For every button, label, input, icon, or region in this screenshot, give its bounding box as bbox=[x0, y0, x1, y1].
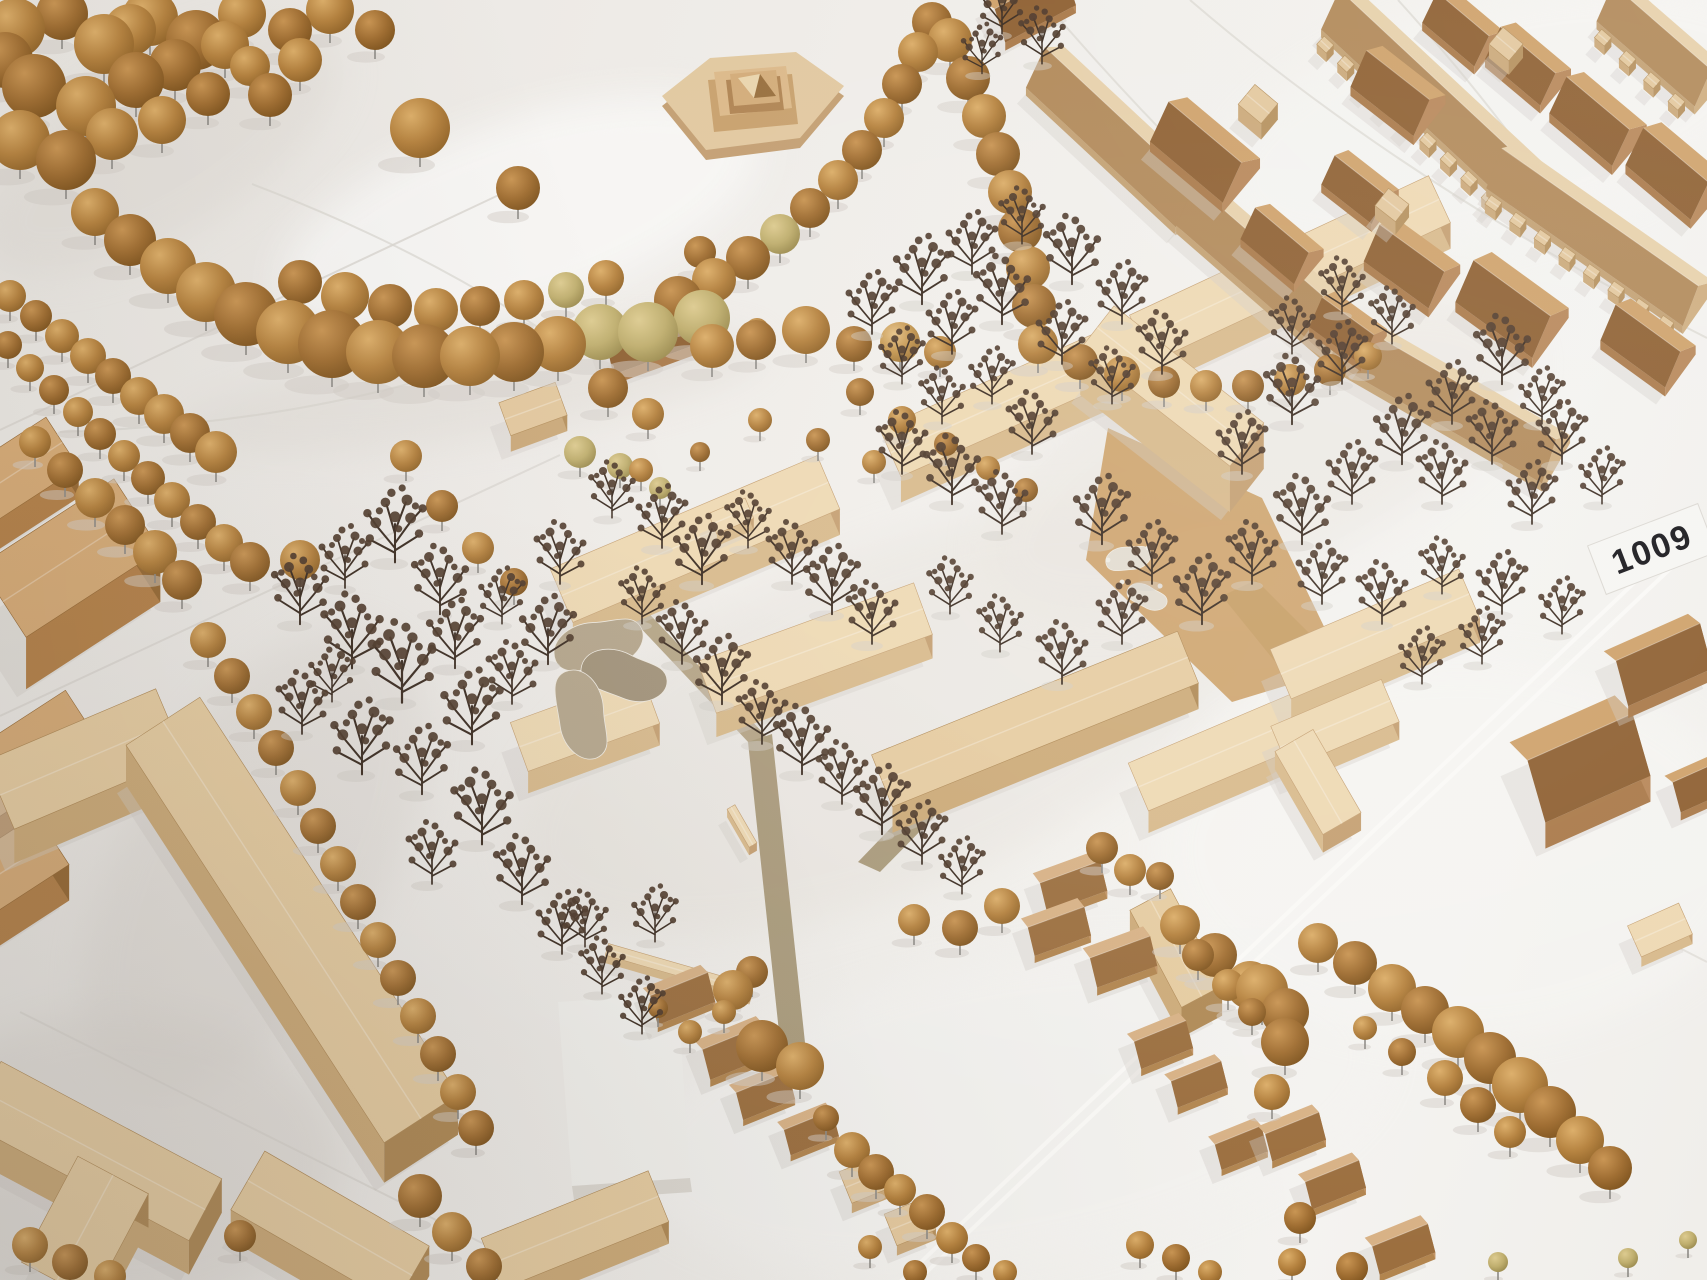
model-tree-round bbox=[862, 450, 886, 474]
model-tree-branchy-shadow bbox=[499, 901, 534, 912]
model-tree-round bbox=[458, 1110, 494, 1146]
model-tree-branchy-shadow bbox=[370, 558, 408, 570]
model-tree-branchy-shadow bbox=[541, 951, 573, 961]
model-tree-round bbox=[1126, 1231, 1154, 1259]
model-tree-round-shadow bbox=[726, 1072, 775, 1087]
model-tree-round bbox=[776, 1042, 824, 1090]
model-tree-round-shadow bbox=[313, 884, 347, 894]
model-tree-round bbox=[400, 998, 436, 1034]
model-tree-branchy-shadow bbox=[931, 612, 960, 621]
model-tree-round bbox=[0, 280, 26, 312]
model-tree-round-shadow bbox=[197, 564, 233, 575]
model-tree-round-shadow bbox=[229, 732, 263, 742]
model-tree-round bbox=[16, 354, 44, 382]
model-tree-branchy-shadow bbox=[1023, 62, 1052, 71]
model-tree-round bbox=[1198, 1260, 1222, 1280]
model-tree-branchy bbox=[893, 233, 951, 305]
model-tree-round-shadow bbox=[1614, 1272, 1633, 1278]
model-tree-branchy-shadow bbox=[1331, 501, 1363, 511]
model-tree-round bbox=[278, 38, 322, 82]
model-tree-round-shadow bbox=[67, 519, 105, 530]
model-tree-round bbox=[84, 418, 116, 450]
model-tree-branchy-shadow bbox=[851, 641, 883, 651]
model-tree-branchy-shadow bbox=[636, 940, 665, 949]
model-tree-round bbox=[1148, 366, 1180, 398]
model-tree-round bbox=[138, 96, 186, 144]
model-tree-round bbox=[1114, 854, 1146, 886]
model-tree-round bbox=[909, 1194, 945, 1230]
model-tree-round-shadow bbox=[853, 1263, 876, 1270]
model-tree-round-shadow bbox=[33, 408, 62, 416]
model-tree-branchy-shadow bbox=[1321, 381, 1353, 391]
model-tree-round-shadow bbox=[1206, 1004, 1236, 1013]
model-tree-round-shadow bbox=[878, 1209, 908, 1218]
model-tree-branchy-shadow bbox=[1041, 681, 1073, 691]
model-tree-round bbox=[195, 431, 237, 473]
model-tree-round bbox=[813, 1105, 839, 1131]
model-tree-round-shadow bbox=[1247, 1112, 1281, 1122]
model-tree-branchy-shadow bbox=[1231, 581, 1263, 591]
model-tree-branchy-shadow bbox=[1141, 371, 1173, 381]
model-tree-branchy-shadow bbox=[979, 321, 1014, 332]
model-tree-branchy bbox=[1043, 213, 1101, 285]
model-tree-round bbox=[632, 398, 664, 430]
model-tree-branchy-shadow bbox=[1011, 451, 1043, 461]
model-tree-round-shadow bbox=[124, 575, 166, 587]
model-tree-branchy-shadow bbox=[1379, 461, 1414, 472]
model-tree-branchy bbox=[846, 269, 899, 334]
model-tree-round bbox=[1232, 370, 1264, 402]
model-tree-branchy-shadow bbox=[483, 622, 512, 631]
model-tree-branchy-shadow bbox=[931, 351, 963, 361]
model-tree-branchy bbox=[406, 819, 459, 884]
model-tree-round bbox=[1238, 998, 1266, 1026]
model-tree-branchy-shadow bbox=[593, 516, 622, 525]
model-tree-round-shadow bbox=[1232, 1029, 1259, 1037]
model-tree-round-shadow bbox=[420, 525, 450, 534]
model-tree-branchy-shadow bbox=[375, 698, 417, 711]
model-tree-branchy-shadow bbox=[1421, 501, 1453, 511]
model-tree-branchy-shadow bbox=[1049, 281, 1084, 292]
model-tree-round bbox=[748, 408, 772, 432]
model-tree-branchy-shadow bbox=[1093, 402, 1122, 411]
model-tree-branchy-shadow bbox=[447, 740, 485, 752]
model-tree-round bbox=[440, 1074, 476, 1110]
model-tree-round-shadow bbox=[293, 846, 327, 856]
model-tree-round-shadow bbox=[728, 361, 766, 372]
model-tree-round bbox=[1494, 1116, 1526, 1148]
model-tree-round-shadow bbox=[94, 266, 143, 281]
model-tree-round bbox=[846, 378, 874, 406]
model-tree-branchy-shadow bbox=[901, 861, 933, 871]
model-tree-branchy-shadow bbox=[277, 621, 312, 632]
model-tree-branchy-shadow bbox=[973, 402, 1002, 411]
model-tree-round-shadow bbox=[239, 118, 281, 130]
model-tree-round bbox=[1588, 1146, 1632, 1190]
model-tree-round-shadow bbox=[378, 157, 435, 174]
model-tree-round-shadow bbox=[686, 466, 705, 472]
model-tree-round bbox=[1086, 832, 1118, 864]
model-tree-branchy-shadow bbox=[457, 840, 495, 852]
model-tree-round-shadow bbox=[10, 385, 37, 393]
architectural-model-photo: 1009 bbox=[0, 0, 1707, 1280]
model-tree-round-shadow bbox=[413, 1074, 447, 1084]
model-tree-round bbox=[162, 560, 202, 600]
model-tree-round bbox=[186, 72, 230, 116]
model-tree-round-shadow bbox=[1546, 1164, 1592, 1177]
model-tree-round bbox=[462, 532, 494, 564]
model-tree-round bbox=[884, 1174, 916, 1206]
model-tree-round-shadow bbox=[389, 1219, 431, 1231]
model-tree-round bbox=[460, 286, 500, 326]
model-tree-round-shadow bbox=[840, 409, 867, 417]
model-tree-round-shadow bbox=[1142, 401, 1172, 410]
model-tree-round-shadow bbox=[1140, 893, 1167, 901]
model-tree-round-shadow bbox=[707, 1028, 730, 1035]
model-tree-round-shadow bbox=[808, 1134, 833, 1141]
model-tree-round bbox=[984, 888, 1020, 924]
model-tree-branchy-shadow bbox=[337, 770, 375, 782]
model-tree-round-shadow bbox=[558, 471, 588, 480]
model-tree-round-shadow bbox=[78, 453, 108, 462]
model-tree-branchy-shadow bbox=[281, 731, 313, 741]
model-tree-branchy-shadow bbox=[943, 892, 972, 901]
model-tree-round-shadow bbox=[147, 520, 181, 530]
model-tree-round bbox=[20, 300, 52, 332]
model-tree-round-shadow bbox=[164, 321, 221, 338]
model-tree-round-shadow bbox=[930, 1257, 960, 1266]
model-tree-round-shadow bbox=[1382, 1069, 1409, 1077]
courtyard-chair-dot bbox=[1106, 558, 1111, 563]
model-tree-round bbox=[280, 770, 316, 806]
model-tree-round bbox=[432, 1212, 472, 1252]
model-tree-round bbox=[496, 166, 540, 210]
model-tree-round-shadow bbox=[1453, 1125, 1487, 1135]
model-tree-round bbox=[300, 808, 336, 844]
model-tree-round bbox=[426, 490, 458, 522]
model-tree-round bbox=[380, 960, 416, 996]
model-tree-branchy-shadow bbox=[324, 585, 356, 595]
model-tree-round bbox=[782, 306, 830, 354]
model-tree-branchy bbox=[450, 766, 514, 844]
model-tree-round-shadow bbox=[61, 236, 107, 249]
model-tree-round bbox=[690, 442, 710, 462]
model-tree-round bbox=[39, 375, 69, 405]
model-tree-branchy-shadow bbox=[1221, 471, 1253, 481]
model-tree-round bbox=[1160, 905, 1200, 945]
model-tree-round bbox=[36, 130, 96, 190]
model-tree-round bbox=[690, 324, 734, 368]
model-tree-round bbox=[224, 1220, 256, 1252]
model-tree-round bbox=[898, 904, 930, 936]
model-tree-round bbox=[504, 280, 544, 320]
model-tree-round-shadow bbox=[393, 1036, 427, 1046]
model-tree-branchy-shadow bbox=[981, 650, 1010, 659]
model-tree-round bbox=[1182, 939, 1214, 971]
model-tree-round-shadow bbox=[743, 436, 766, 443]
model-tree-round bbox=[214, 658, 250, 694]
model-tree-round-shadow bbox=[1176, 974, 1206, 983]
model-tree-round bbox=[52, 1244, 88, 1280]
model-tree-round-shadow bbox=[243, 362, 304, 380]
model-tree-round-shadow bbox=[201, 344, 262, 362]
model-tree-round bbox=[1353, 1016, 1377, 1040]
model-tree-round-shadow bbox=[13, 461, 43, 470]
model-tree-branchy-shadow bbox=[881, 471, 913, 481]
model-tree-branchy-shadow bbox=[859, 831, 894, 842]
model-tree-round-shadow bbox=[1579, 1191, 1621, 1203]
model-tree-round bbox=[548, 272, 584, 308]
model-tree-round bbox=[962, 94, 1006, 138]
model-tree-branchy bbox=[426, 597, 484, 669]
model-tree-round-shadow bbox=[1184, 405, 1214, 414]
model-tree-branchy-shadow bbox=[1541, 461, 1573, 471]
model-tree-round-shadow bbox=[673, 1048, 696, 1055]
model-tree-round bbox=[806, 428, 830, 452]
model-tree-branchy-shadow bbox=[1101, 641, 1133, 651]
model-tree-round-shadow bbox=[129, 293, 182, 309]
model-tree-branchy-shadow bbox=[851, 331, 883, 341]
model-tree-round-shadow bbox=[218, 1255, 248, 1264]
model-tree-round bbox=[1427, 1060, 1463, 1096]
model-tree-round-shadow bbox=[183, 660, 217, 670]
model-tree-round bbox=[942, 910, 978, 946]
model-tree-round-shadow bbox=[1420, 1098, 1454, 1108]
model-tree-branchy-shadow bbox=[883, 382, 912, 391]
model-tree-round-shadow bbox=[1484, 1276, 1503, 1280]
model-tree-round bbox=[75, 478, 115, 518]
model-tree-round bbox=[588, 260, 624, 296]
model-tree-branchy-shadow bbox=[699, 701, 734, 712]
model-tree-branchy-shadow bbox=[1179, 621, 1214, 632]
model-tree-round bbox=[440, 326, 500, 386]
model-tree-round-shadow bbox=[0, 315, 18, 324]
model-tree-round bbox=[588, 368, 628, 408]
model-tree-round bbox=[976, 132, 1020, 176]
model-tree-branchy-shadow bbox=[583, 992, 612, 1001]
model-tree-branchy-shadow bbox=[1041, 361, 1073, 371]
model-tree-round-shadow bbox=[124, 497, 156, 507]
model-tree-round bbox=[236, 694, 272, 730]
model-tree-branchy-shadow bbox=[679, 581, 714, 592]
model-tree-round bbox=[1298, 923, 1338, 963]
model-tree-round-shadow bbox=[1290, 964, 1328, 975]
model-tree-round bbox=[63, 397, 93, 427]
model-tree-round bbox=[390, 440, 422, 472]
model-tree-branchy-shadow bbox=[1431, 421, 1463, 431]
model-tree-round bbox=[1284, 1202, 1316, 1234]
model-tree-branchy-shadow bbox=[923, 422, 952, 431]
model-tree-round-shadow bbox=[1278, 1237, 1308, 1246]
model-tree-branchy-shadow bbox=[1361, 621, 1393, 631]
model-tree-branchy-shadow bbox=[1423, 592, 1452, 601]
model-tree-round-shadow bbox=[24, 189, 81, 206]
model-tree-round-shadow bbox=[772, 354, 818, 367]
model-tree-branchy bbox=[486, 639, 539, 704]
model-tree-round-shadow bbox=[851, 1192, 885, 1202]
model-tree-round-shadow bbox=[1108, 889, 1138, 898]
model-tree-round bbox=[306, 0, 354, 34]
model-tree-round-shadow bbox=[956, 1275, 983, 1280]
model-tree-round-shadow bbox=[1226, 405, 1256, 414]
model-tree-round-shadow bbox=[384, 475, 414, 484]
model-tree-round-shadow bbox=[57, 430, 86, 438]
model-tree-round bbox=[858, 1235, 882, 1259]
model-tree-round-shadow bbox=[1120, 1262, 1147, 1270]
model-tree-round bbox=[1618, 1248, 1638, 1268]
model-tree-branchy-shadow bbox=[729, 546, 758, 555]
model-tree-round-shadow bbox=[902, 1232, 936, 1242]
model-tree-branchy-shadow bbox=[411, 881, 443, 891]
model-tree-branchy-shadow bbox=[641, 545, 673, 555]
model-tree-round-shadow bbox=[580, 409, 618, 420]
model-tree-round-shadow bbox=[5, 1265, 39, 1275]
model-tree-round-shadow bbox=[681, 369, 723, 381]
model-tree-round bbox=[1388, 1038, 1416, 1066]
model-tree-branchy-shadow bbox=[399, 791, 434, 802]
model-tree-branchy-shadow bbox=[1543, 632, 1572, 641]
model-tree-round bbox=[1488, 1252, 1508, 1272]
model-tree-round bbox=[19, 426, 51, 458]
model-tree-branchy-shadow bbox=[1279, 541, 1314, 552]
model-tree-round bbox=[360, 922, 396, 958]
model-tree-branchy-shadow bbox=[779, 771, 814, 782]
model-tree-branchy-shadow bbox=[1269, 421, 1304, 432]
model-tree-branchy-shadow bbox=[1003, 242, 1032, 251]
model-tree-round bbox=[248, 73, 292, 117]
model-tree-round-shadow bbox=[1080, 867, 1110, 876]
model-tree-round bbox=[278, 260, 322, 304]
model-tree-round-shadow bbox=[251, 768, 285, 778]
model-tree-round bbox=[882, 64, 922, 104]
model-tree-round-shadow bbox=[222, 583, 260, 594]
model-tree-round-shadow bbox=[273, 808, 307, 818]
model-tree-round-shadow bbox=[88, 396, 122, 406]
model-tree-round-shadow bbox=[977, 926, 1011, 936]
model-tree-branchy-shadow bbox=[821, 801, 853, 811]
model-tree-branchy-shadow bbox=[1511, 521, 1543, 531]
model-tree-round-shadow bbox=[1324, 986, 1366, 998]
model-tree-round bbox=[564, 436, 596, 468]
model-tree-round bbox=[230, 542, 270, 582]
model-tree-branchy-shadow bbox=[1471, 461, 1503, 471]
model-tree-branchy bbox=[1538, 575, 1586, 634]
model-tree-branchy-shadow bbox=[809, 611, 844, 622]
model-tree-round-shadow bbox=[829, 364, 863, 374]
model-tree-round bbox=[47, 452, 83, 488]
model-tree-round-shadow bbox=[1055, 382, 1089, 392]
model-tree-round bbox=[1146, 862, 1174, 890]
model-tree-round bbox=[320, 846, 356, 882]
model-tree-round-shadow bbox=[1488, 1151, 1518, 1160]
model-tree-branchy-shadow bbox=[1101, 321, 1133, 331]
model-tree-round bbox=[1460, 1087, 1496, 1123]
courtyard-chair-dot bbox=[1134, 614, 1139, 619]
model-tree-round-shadow bbox=[154, 601, 192, 612]
model-tree-round bbox=[340, 884, 376, 920]
model-tree-branchy-shadow bbox=[1079, 541, 1114, 552]
model-tree-branchy-shadow bbox=[1301, 601, 1333, 611]
model-tree-branchy bbox=[363, 484, 427, 562]
model-tree-branchy-shadow bbox=[1479, 381, 1514, 392]
model-tree-round-shadow bbox=[40, 490, 74, 500]
model-tree-round bbox=[0, 331, 22, 359]
model-tree-round bbox=[1261, 1018, 1309, 1066]
model-tree-branchy-shadow bbox=[741, 741, 773, 751]
model-tree-round bbox=[1679, 1231, 1697, 1249]
model-tree-round bbox=[1162, 1244, 1190, 1272]
model-tree-round-shadow bbox=[136, 435, 174, 446]
model-tree-round-shadow bbox=[487, 211, 529, 223]
model-tree-branchy-shadow bbox=[623, 1032, 652, 1041]
model-tree-round bbox=[190, 622, 226, 658]
model-tree-round bbox=[618, 302, 678, 362]
model-tree-round-shadow bbox=[128, 144, 174, 157]
model-tree-branchy-shadow bbox=[1373, 342, 1402, 351]
model-tree-round-shadow bbox=[207, 696, 241, 706]
model-tree-round bbox=[355, 10, 395, 50]
model-tree-branchy-shadow bbox=[1583, 502, 1612, 511]
model-tree-round-shadow bbox=[162, 454, 200, 465]
model-tree-round-shadow bbox=[1348, 373, 1375, 381]
model-tree-branchy bbox=[1476, 549, 1529, 614]
model-tree-round-shadow bbox=[353, 960, 387, 970]
model-tree-branchy-shadow bbox=[1463, 662, 1492, 671]
model-tree-round-shadow bbox=[644, 1022, 663, 1028]
model-tree-round-shadow bbox=[428, 385, 485, 402]
model-tree-round bbox=[736, 320, 776, 360]
model-tree-branchy-shadow bbox=[981, 531, 1013, 541]
model-tree-round-shadow bbox=[112, 417, 148, 428]
model-tree-branchy bbox=[411, 543, 469, 615]
model-tree-round bbox=[420, 1036, 456, 1072]
model-tree-branchy-shadow bbox=[1403, 682, 1432, 691]
model-tree-branchy bbox=[1578, 445, 1626, 504]
model-tree-round-shadow bbox=[333, 922, 367, 932]
model-tree-round-shadow bbox=[892, 939, 922, 948]
model-tree-round-shadow bbox=[1675, 1253, 1692, 1258]
model-tree-branchy-shadow bbox=[491, 701, 523, 711]
model-tree-branchy-shadow bbox=[539, 581, 571, 591]
model-tree-branchy-shadow bbox=[771, 581, 803, 591]
model-tree-round-shadow bbox=[626, 433, 656, 442]
model-tree-round-shadow bbox=[97, 546, 135, 557]
model-tree-round bbox=[1254, 1074, 1290, 1110]
model-tree-round bbox=[1190, 370, 1222, 402]
model-tree-round bbox=[1278, 1248, 1306, 1276]
model-tree-round-shadow bbox=[173, 542, 207, 552]
model-tree-round-shadow bbox=[451, 1148, 485, 1158]
model-tree-round-shadow bbox=[766, 1090, 812, 1103]
model-tree-round bbox=[398, 1174, 442, 1218]
model-tree-round-shadow bbox=[347, 51, 385, 62]
model-tree-round bbox=[712, 1000, 736, 1024]
model-tree-round-shadow bbox=[187, 474, 227, 486]
model-tree-round-shadow bbox=[424, 1253, 462, 1264]
entry-number-card: 1009 bbox=[1588, 504, 1707, 595]
model-tree-branchy-shadow bbox=[1131, 581, 1163, 591]
model-tree-branchy-shadow bbox=[661, 661, 693, 671]
model-tree-branchy-shadow bbox=[965, 72, 991, 80]
model-tree-round bbox=[678, 1020, 702, 1044]
model-tree-round-shadow bbox=[935, 948, 969, 958]
model-tree-round bbox=[936, 1222, 968, 1254]
model-tree-round-shadow bbox=[801, 456, 824, 463]
model-tree-branchy-shadow bbox=[432, 665, 467, 676]
model-tree-round-shadow bbox=[857, 478, 880, 485]
model-tree-round bbox=[962, 1244, 990, 1272]
model-tree-round bbox=[12, 1227, 48, 1263]
